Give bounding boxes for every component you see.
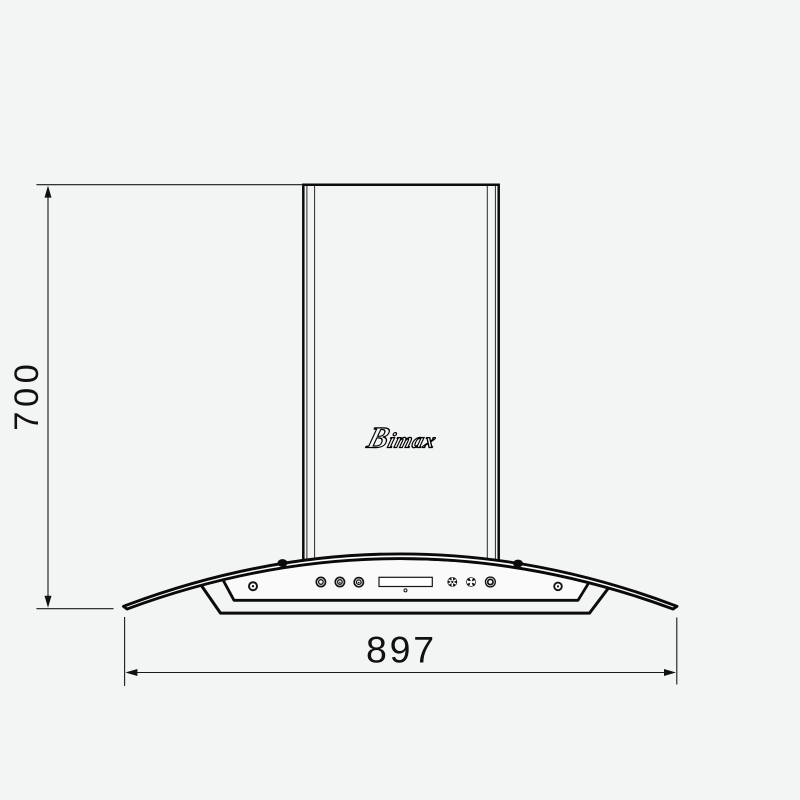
svg-text:897: 897 <box>366 628 437 670</box>
svg-text:700: 700 <box>8 360 46 431</box>
